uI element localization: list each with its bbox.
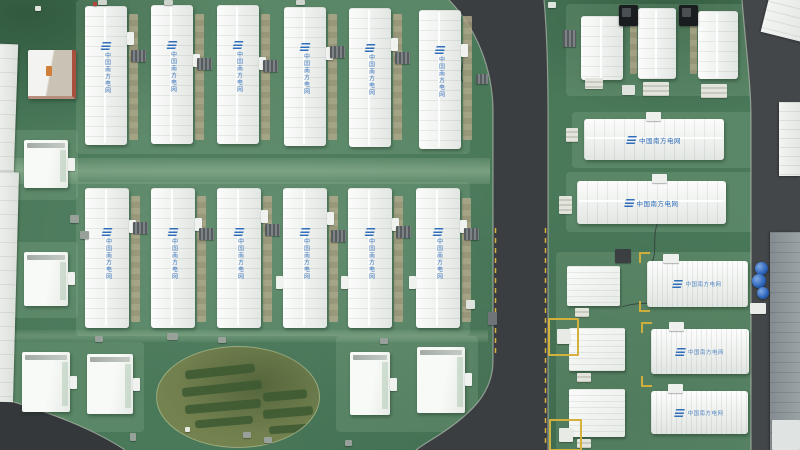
- csg-logo: 中国南方电网: [651, 391, 748, 434]
- hvac-unit: [265, 224, 280, 236]
- converter-building: [581, 16, 623, 80]
- brand-label: 中国南方电网: [103, 52, 110, 94]
- hvac-unit: [476, 74, 488, 84]
- csg-logo: 中国南方电网: [301, 228, 310, 280]
- entry-steps: [701, 84, 727, 98]
- equipment-box: [466, 300, 475, 309]
- battery-building: 中国南方电网: [349, 8, 391, 147]
- yellow-equipment-pad: [549, 419, 582, 450]
- hvac-unit: [131, 50, 146, 62]
- hedge-row: [263, 406, 314, 419]
- battery-container-large: 中国南方电网: [647, 261, 748, 307]
- equipment-box: [35, 6, 41, 11]
- battery-container: [567, 266, 620, 306]
- csg-logo: 中国南方电网: [651, 329, 749, 374]
- hvac-unit: [133, 222, 148, 234]
- rooftop-vent: [669, 322, 684, 331]
- csg-logo: 中国南方电网: [102, 42, 111, 94]
- equipment-box: [243, 432, 251, 438]
- door-porch: [68, 272, 75, 285]
- garden-marker: [185, 427, 190, 432]
- hvac-unit: [263, 60, 278, 72]
- hvac-unit: [331, 230, 346, 242]
- gravel-strip: [394, 196, 403, 322]
- aerial-photo-energy-storage-station: 中国南方电网 中国南方电网 中国南方电网 中国南方电网 中国南方电网 中国南方电…: [0, 0, 800, 450]
- boundary-gray-roof: [770, 232, 800, 450]
- roadside-pole-base: [488, 312, 497, 325]
- transformer-vent: [622, 8, 631, 17]
- entry-steps: [643, 82, 669, 96]
- hvac-unit: [396, 226, 411, 238]
- yellow-corner-marking: [639, 301, 650, 312]
- auxiliary-building: [22, 352, 70, 412]
- door-porch: [390, 378, 397, 391]
- door-porch: [391, 38, 398, 51]
- csg-grid-logo-icon: [101, 42, 112, 50]
- rooftop-vent: [663, 254, 679, 263]
- csg-grid-logo-icon: [435, 46, 446, 54]
- equipment-box-dark: [615, 249, 631, 263]
- csg-logo: 中国南方电网: [577, 181, 726, 224]
- battery-building: 中国南方电网: [151, 5, 193, 144]
- csg-grid-logo-icon: [233, 41, 244, 49]
- hedge-row: [195, 415, 253, 428]
- csg-grid-logo-icon: [672, 280, 683, 288]
- auxiliary-building: [350, 352, 390, 415]
- equipment-box: [167, 333, 178, 340]
- control-building: 中国南方电网: [577, 181, 726, 224]
- gravel-strip: [195, 14, 204, 140]
- brand-label: 中国南方电网: [639, 135, 681, 145]
- yellow-equipment-pad: [548, 318, 579, 356]
- gravel-strip: [393, 14, 402, 140]
- rooftop-vent: [164, 0, 173, 5]
- gravel-strip: [197, 196, 206, 322]
- csg-grid-logo-icon: [102, 228, 113, 236]
- door-porch: [261, 210, 268, 223]
- entry-steps: [585, 78, 603, 89]
- converter-building: [638, 8, 676, 79]
- blue-barrel: [752, 274, 766, 288]
- gravel-strip: [328, 14, 337, 140]
- auxiliary-building: [417, 347, 465, 413]
- equipment-box: [95, 336, 103, 342]
- equipment-box: [548, 2, 556, 8]
- rooftop-transformer: [619, 5, 638, 26]
- equipment-box: [70, 215, 79, 223]
- csg-logo: 中国南方电网: [366, 228, 375, 280]
- entry-steps: [575, 308, 589, 317]
- csg-grid-logo-icon: [168, 228, 179, 236]
- equipment-box: [380, 338, 388, 344]
- utility-building-red-trim: [28, 50, 76, 99]
- hvac-unit: [395, 52, 410, 64]
- brand-label: 中国南方电网: [302, 238, 309, 280]
- brand-label: 中国南方电网: [685, 280, 721, 288]
- boundary-roof: [779, 102, 800, 176]
- battery-building: 中国南方电网: [416, 188, 460, 328]
- hedge-row: [263, 389, 308, 402]
- door-porch: [409, 276, 416, 289]
- entry-steps: [559, 196, 572, 214]
- yellow-corner-marking: [641, 376, 652, 387]
- csg-logo: 中国南方电网: [436, 46, 445, 98]
- entry-steps: [566, 128, 578, 142]
- brand-label: 中国南方电网: [688, 348, 724, 356]
- equipment-box: [80, 231, 89, 239]
- equipment-box: [559, 428, 573, 442]
- battery-building: 中国南方电网: [151, 188, 195, 328]
- rooftop-vent: [98, 0, 107, 5]
- equipment-box: [130, 433, 136, 441]
- rooftop-vent: [296, 0, 305, 5]
- entry-steps: [577, 373, 591, 382]
- battery-building: 中国南方电网: [217, 188, 261, 328]
- csg-grid-logo-icon: [365, 44, 376, 52]
- brand-label: 中国南方电网: [687, 409, 723, 417]
- hvac-unit: [199, 228, 214, 240]
- red-marker: [93, 2, 97, 6]
- equipment-box: [557, 329, 570, 344]
- equipment-box: [345, 440, 352, 446]
- hedge-row: [185, 363, 256, 379]
- battery-building: 中国南方电网: [85, 6, 127, 145]
- boundary-roof-patch: [772, 420, 800, 450]
- door-porch: [276, 276, 283, 289]
- csg-grid-logo-icon: [624, 199, 635, 207]
- battery-building: 中国南方电网: [284, 7, 326, 146]
- csg-logo: 中国南方电网: [434, 228, 443, 280]
- converter-building: [698, 11, 738, 79]
- csg-logo: 中国南方电网: [103, 228, 112, 280]
- csg-logo: 中国南方电网: [584, 119, 724, 160]
- csg-grid-logo-icon: [674, 409, 685, 417]
- csg-grid-logo-icon: [300, 228, 311, 236]
- hvac-unit: [563, 30, 576, 47]
- gravel-strip: [261, 14, 270, 140]
- battery-building: 中国南方电网: [283, 188, 327, 328]
- equipment-box: [264, 437, 272, 443]
- battery-container-large: 中国南方电网: [651, 391, 748, 434]
- csg-logo: 中国南方电网: [301, 43, 310, 95]
- csg-grid-logo-icon: [167, 41, 178, 49]
- door-porch: [133, 378, 140, 391]
- brand-label: 中国南方电网: [637, 198, 679, 208]
- csg-grid-logo-icon: [626, 136, 637, 144]
- yellow-corner-marking: [641, 322, 652, 333]
- landscaped-oval-garden: [156, 346, 320, 448]
- csg-grid-logo-icon: [234, 228, 245, 236]
- brand-label: 中国南方电网: [104, 238, 111, 280]
- gravel-strip: [463, 16, 472, 140]
- door-porch: [68, 158, 75, 171]
- blue-barrel: [757, 287, 769, 299]
- hedge-row: [182, 380, 263, 397]
- gravel-strip: [131, 196, 140, 322]
- brand-label: 中国南方电网: [236, 238, 243, 280]
- rooftop-transformer: [679, 5, 698, 26]
- hvac-unit: [464, 228, 479, 240]
- door-porch: [327, 212, 334, 225]
- brand-label: 中国南方电网: [235, 51, 242, 93]
- csg-logo: 中国南方电网: [234, 41, 243, 93]
- door-porch: [465, 373, 472, 386]
- equipment-box: [622, 85, 635, 95]
- csg-logo: 中国南方电网: [235, 228, 244, 280]
- brand-label: 中国南方电网: [435, 238, 442, 280]
- hvac-unit: [197, 58, 212, 70]
- csg-grid-logo-icon: [365, 228, 376, 236]
- auxiliary-building: [24, 252, 68, 306]
- csg-logo: 中国南方电网: [169, 228, 178, 280]
- auxiliary-building: [24, 140, 68, 188]
- battery-container-large: 中国南方电网: [651, 329, 749, 374]
- door-porch: [70, 376, 77, 389]
- transformer-vent: [682, 8, 691, 17]
- battery-building: 中国南方电网: [348, 188, 392, 328]
- hvac-unit: [330, 46, 345, 58]
- hedge-row: [185, 399, 261, 415]
- brand-label: 中国南方电网: [437, 56, 444, 98]
- csg-grid-logo-icon: [675, 348, 686, 356]
- csg-grid-logo-icon: [433, 228, 444, 236]
- yellow-corner-marking: [639, 252, 650, 263]
- csg-logo: 中国南方电网: [647, 261, 748, 307]
- control-building: 中国南方电网: [584, 119, 724, 160]
- rooftop-vent: [646, 112, 661, 121]
- door-porch: [461, 44, 468, 57]
- csg-grid-logo-icon: [300, 43, 311, 51]
- brand-label: 中国南方电网: [367, 238, 374, 280]
- csg-logo: 中国南方电网: [366, 44, 375, 96]
- equipment-box: [750, 303, 766, 314]
- battery-building: 中国南方电网: [85, 188, 129, 328]
- battery-building: 中国南方电网: [217, 5, 259, 144]
- brand-label: 中国南方电网: [302, 53, 309, 95]
- equipment-box: [218, 337, 226, 343]
- brand-label: 中国南方电网: [170, 238, 177, 280]
- door-porch: [127, 32, 134, 45]
- brand-label: 中国南方电网: [367, 54, 374, 96]
- auxiliary-building: [87, 354, 133, 414]
- door-porch: [341, 276, 348, 289]
- brand-label: 中国南方电网: [169, 51, 176, 93]
- battery-building: 中国南方电网: [419, 10, 461, 149]
- csg-logo: 中国南方电网: [168, 41, 177, 93]
- blue-barrel: [755, 262, 768, 275]
- rooftop-vent: [668, 384, 683, 393]
- orange-marker: [46, 66, 52, 76]
- rooftop-vent: [652, 174, 667, 183]
